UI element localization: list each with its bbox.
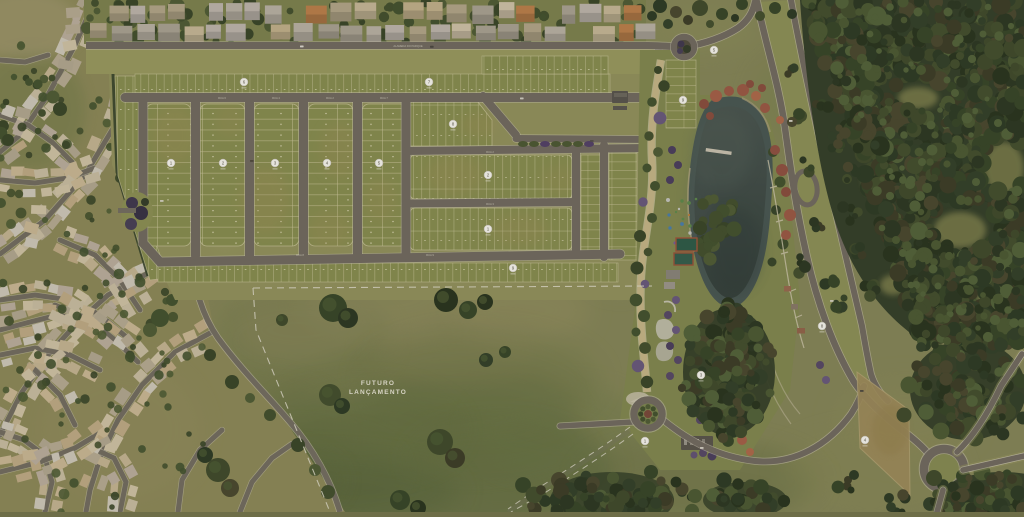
svg-text:RUA 7: RUA 7 [380,96,388,100]
svg-text:ALAMEDA DO PARQUE: ALAMEDA DO PARQUE [393,44,423,48]
svg-text:RUA 3: RUA 3 [486,202,494,206]
svg-text:RUA 2: RUA 2 [326,96,334,100]
svg-text:RUA 9: RUA 9 [426,253,434,257]
svg-text:RUA 2: RUA 2 [486,150,494,154]
svg-text:LANÇAMENTO: LANÇAMENTO [349,389,407,396]
svg-text:RUA 4: RUA 4 [272,96,280,100]
svg-text:RUA 6: RUA 6 [218,96,226,100]
svg-text:RUA 8: RUA 8 [296,253,304,257]
svg-text:FUTURO: FUTURO [361,380,395,387]
